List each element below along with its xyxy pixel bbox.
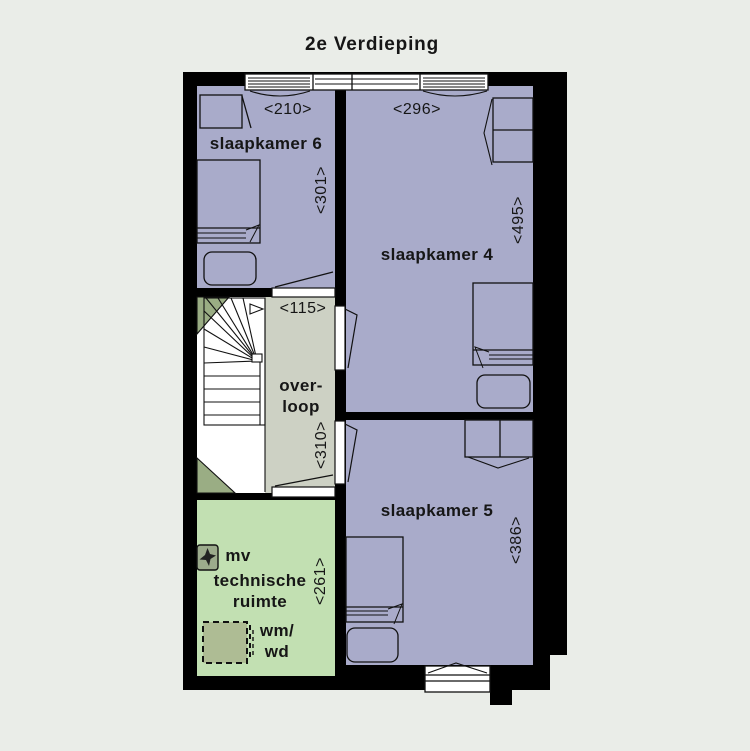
- wm-wd-label: wm/ wd: [260, 620, 294, 662]
- room-label-technische-ruimte: technische ruimte: [214, 570, 307, 612]
- room-label-overloop-line2: loop: [279, 396, 323, 417]
- bed: [473, 283, 533, 368]
- stairwell-floor: [197, 297, 265, 493]
- page-title: 2e Verdieping: [305, 34, 439, 56]
- washer-dryer-outline: [203, 622, 253, 663]
- room-label-slaapkamer-5: slaapkamer 5: [381, 501, 494, 521]
- dim-slaapkamer-4-depth: <495>: [510, 196, 528, 244]
- room-label-slaapkamer-6: slaapkamer 6: [210, 134, 323, 154]
- mv-label: mv: [225, 546, 250, 566]
- dim-slaapkamer-5-depth: <386>: [508, 516, 526, 564]
- floor-plan-drawing: [0, 0, 750, 751]
- room-label-overloop: over- loop: [279, 375, 323, 417]
- room-label-technische-ruimte-line2: ruimte: [214, 591, 307, 612]
- nightstand: [477, 375, 530, 408]
- dim-slaapkamer-6-width: <210>: [264, 101, 312, 119]
- dim-slaapkamer-6-depth: <301>: [313, 166, 331, 214]
- wm-wd-label-line1: wm/: [260, 620, 294, 641]
- room-label-overloop-line1: over-: [279, 375, 323, 396]
- bed: [346, 537, 403, 624]
- wm-wd-label-line2: wd: [260, 641, 294, 662]
- dim-technische-ruimte-depth: <261>: [312, 557, 330, 605]
- nightstand: [204, 252, 256, 285]
- dim-slaapkamer-4-width: <296>: [393, 101, 441, 119]
- room-label-technische-ruimte-line1: technische: [214, 570, 307, 591]
- floor-plan-canvas: 2e Verdieping slaapkamer 6 slaapkamer 4 …: [0, 0, 750, 751]
- dim-overloop-depth: <310>: [313, 421, 331, 469]
- nightstand: [347, 628, 398, 662]
- mv-unit-icon: [197, 545, 218, 570]
- dim-overloop-width: <115>: [280, 300, 327, 318]
- bed: [197, 160, 260, 243]
- room-label-slaapkamer-4: slaapkamer 4: [381, 245, 494, 265]
- bottom-window: [425, 663, 490, 692]
